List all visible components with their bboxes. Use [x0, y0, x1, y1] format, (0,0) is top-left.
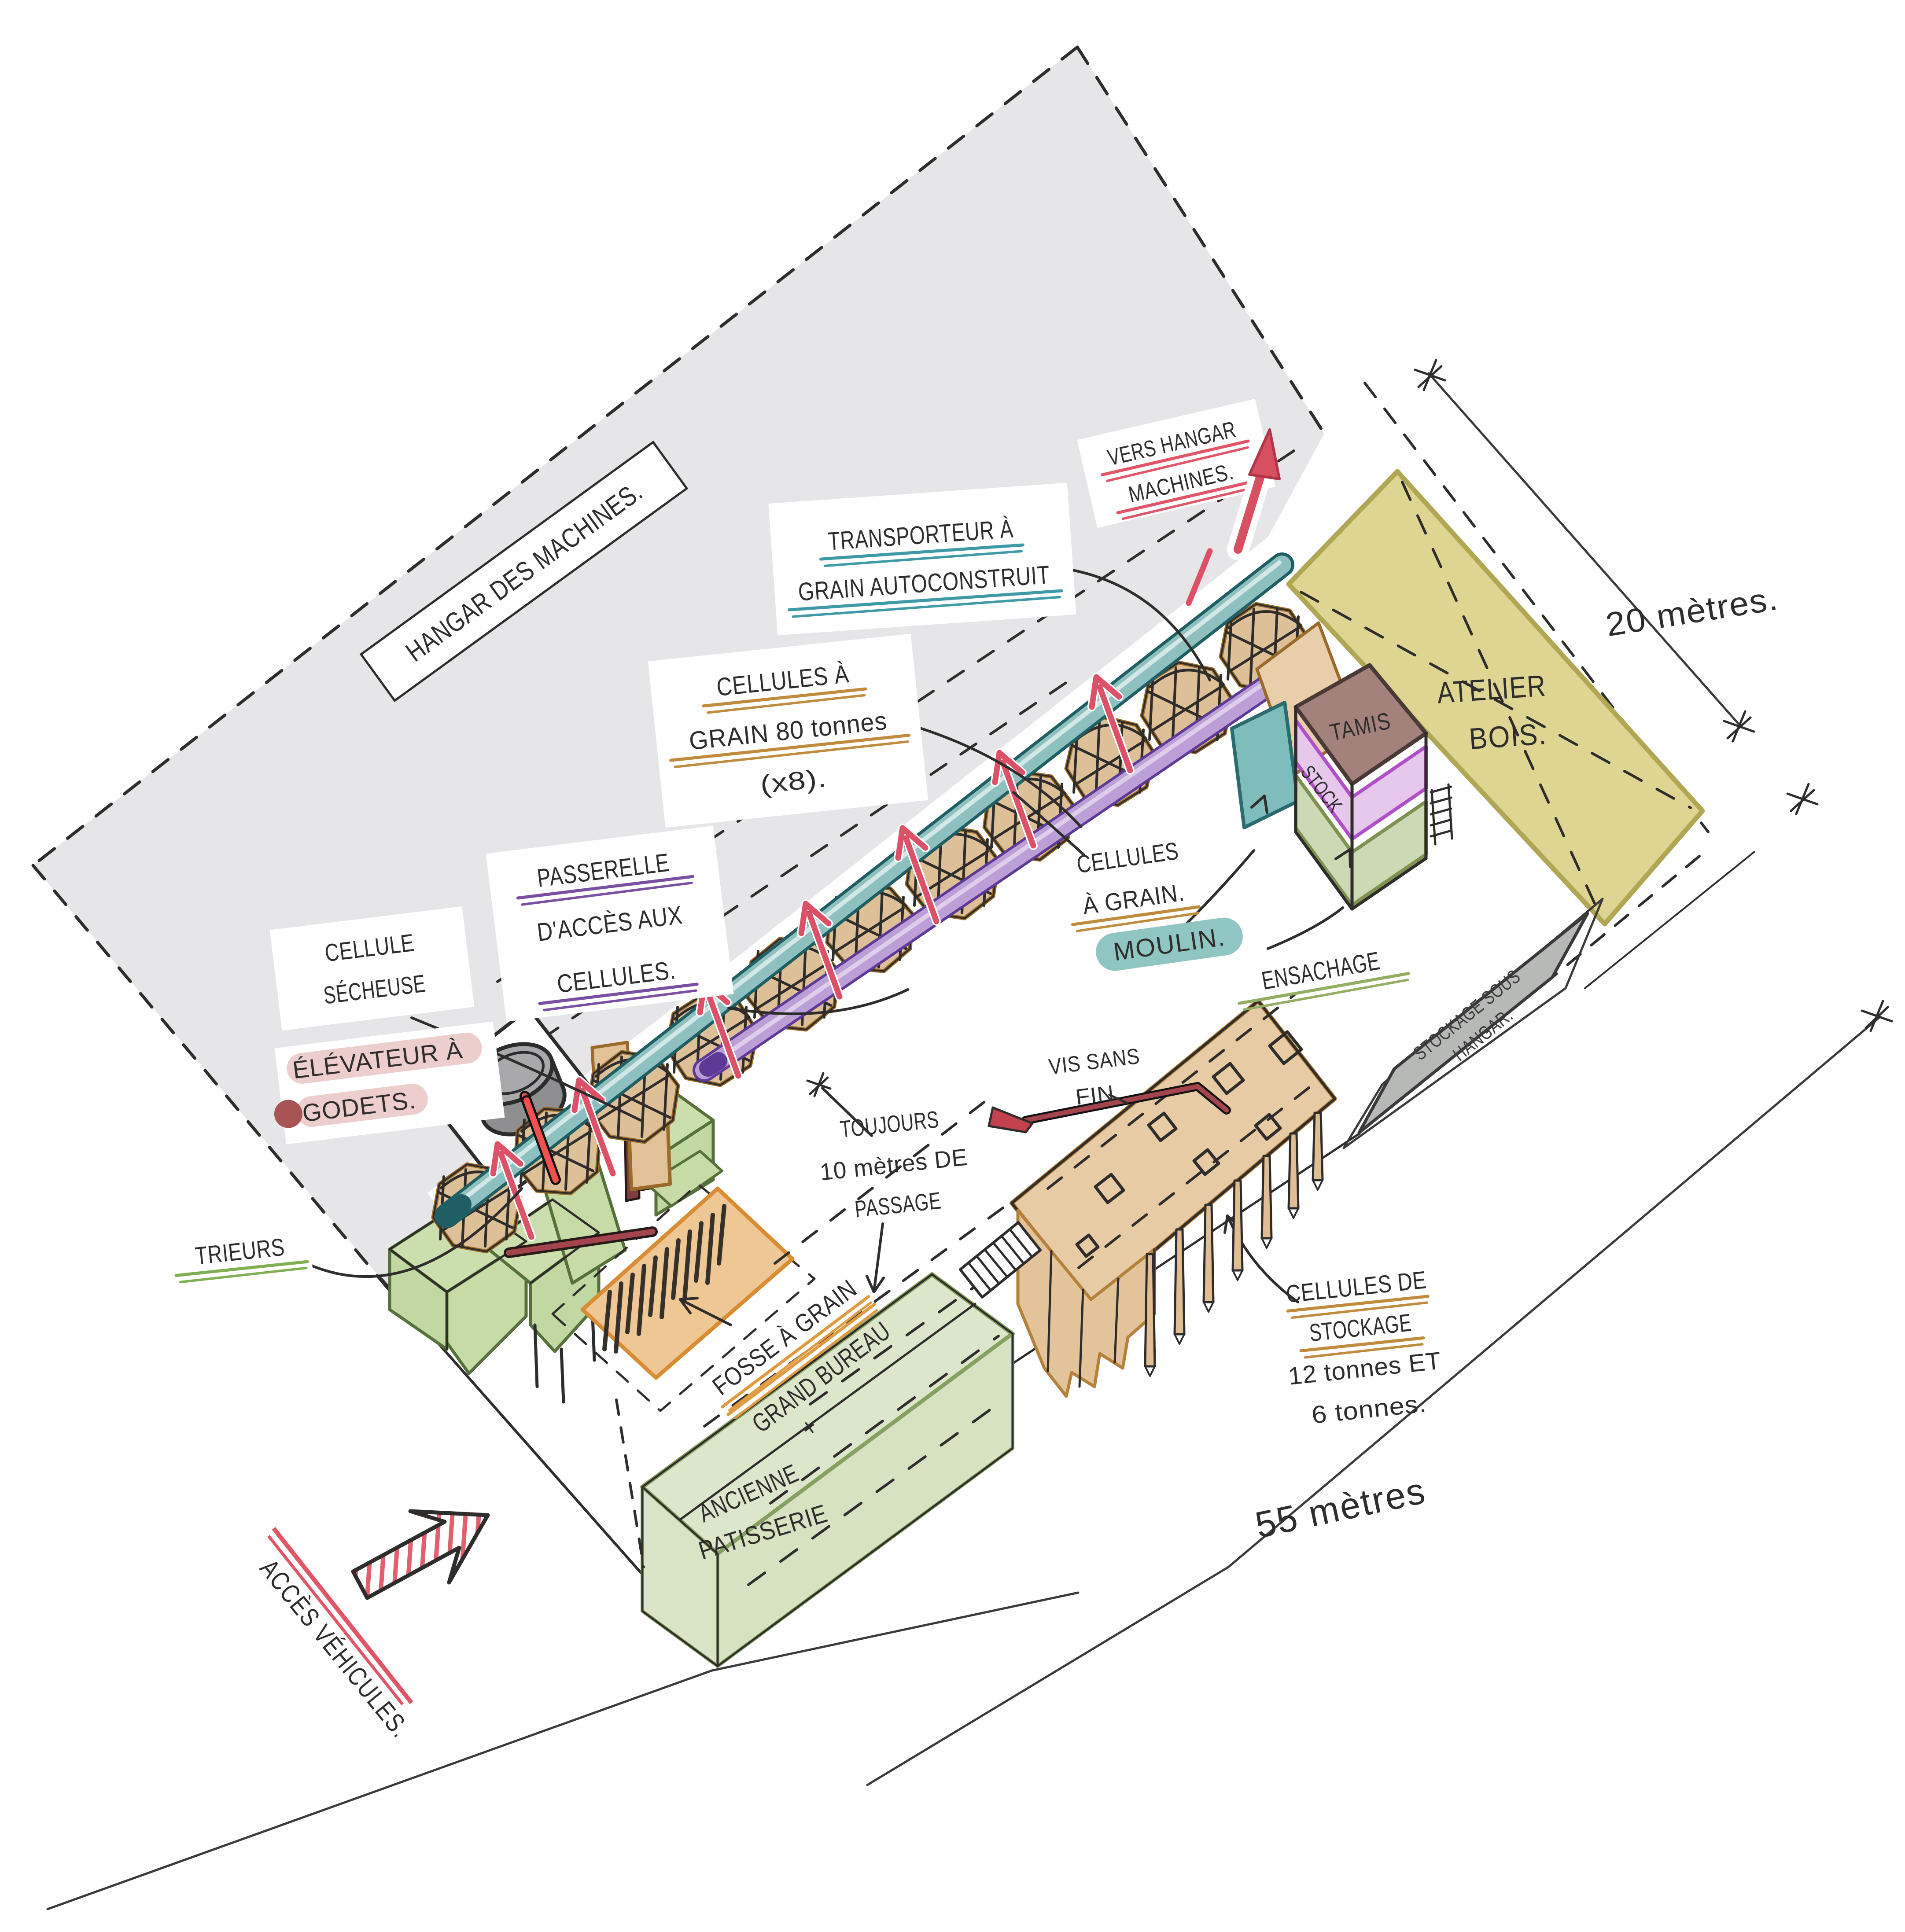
- svg-text:BOIS.: BOIS.: [1468, 717, 1548, 756]
